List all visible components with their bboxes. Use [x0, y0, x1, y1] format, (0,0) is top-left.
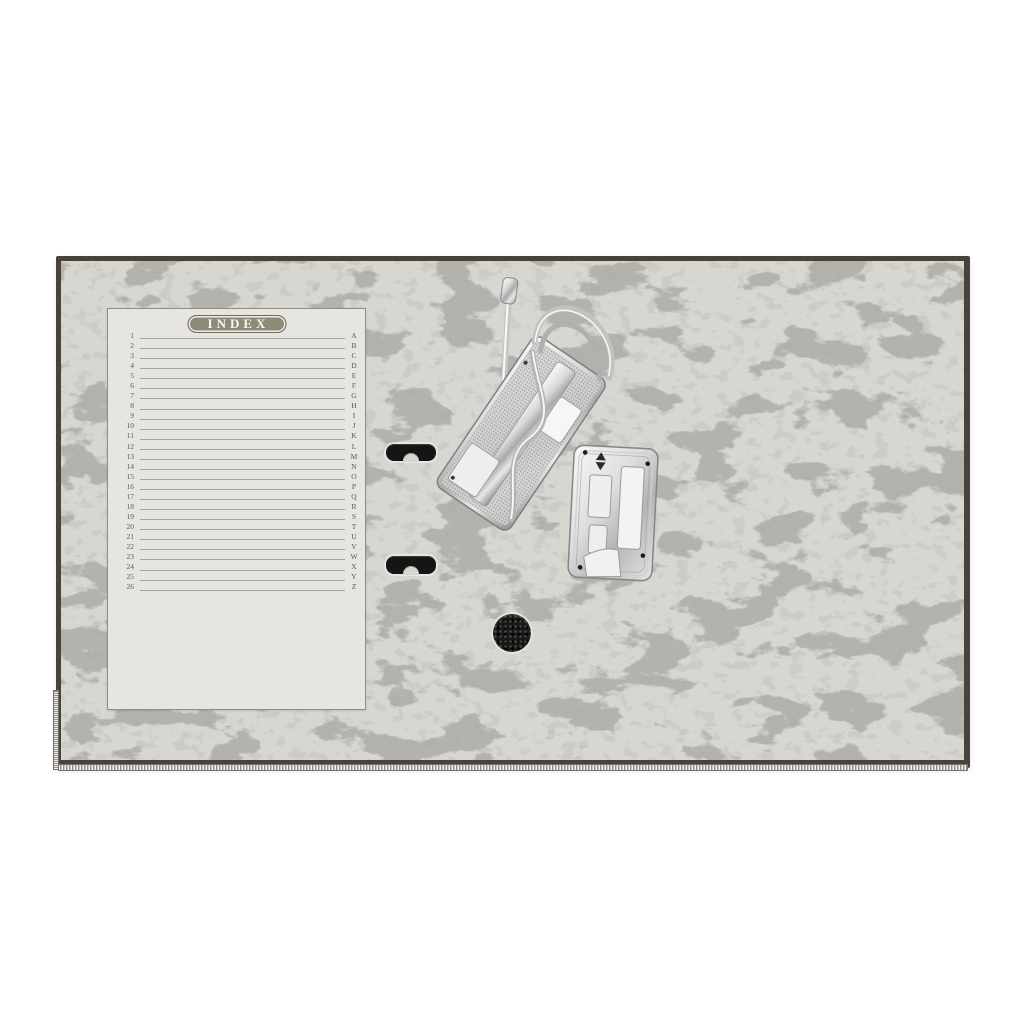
index-row-number: 19 — [116, 513, 139, 521]
index-row-line — [140, 489, 345, 490]
index-row-letter: J — [347, 422, 360, 430]
index-row-line — [140, 429, 345, 430]
index-row: 2B — [116, 340, 360, 350]
index-row-number: 2 — [116, 342, 139, 350]
index-row: 10J — [116, 421, 360, 431]
index-row-number: 26 — [116, 583, 139, 591]
index-row-line — [140, 559, 345, 560]
index-row-line — [140, 509, 345, 510]
lever-arch-file-inner-cover: INDEX 1A2B3C4D5E6F7G8H9I10J11K12L13M14N1… — [56, 256, 970, 768]
index-row-letter: S — [347, 513, 360, 521]
index-row-letter: P — [347, 483, 360, 491]
index-row-number: 24 — [116, 563, 139, 571]
index-row-number: 18 — [116, 503, 139, 511]
index-row: 12L — [116, 441, 360, 451]
index-row-line — [140, 590, 345, 591]
index-row: 21U — [116, 531, 360, 541]
index-row: 25Y — [116, 572, 360, 582]
index-row-number: 21 — [116, 533, 139, 541]
index-row-number: 8 — [116, 402, 139, 410]
grip-hole — [493, 614, 531, 652]
index-row-line — [140, 388, 345, 389]
index-row-letter: H — [347, 402, 360, 410]
index-row-line — [140, 570, 345, 571]
index-row-line — [140, 459, 345, 460]
index-row: 7G — [116, 390, 360, 400]
index-row: 1A — [116, 330, 360, 340]
index-row-letter: B — [347, 342, 360, 350]
index-row-number: 12 — [116, 443, 139, 451]
index-row: 22V — [116, 541, 360, 551]
index-row-number: 9 — [116, 412, 139, 420]
index-row-letter: X — [347, 563, 360, 571]
index-rows: 1A2B3C4D5E6F7G8H9I10J11K12L13M14N15O16P1… — [116, 330, 360, 592]
index-row-number: 5 — [116, 372, 139, 380]
metal-edge-strip-bottom — [58, 764, 968, 771]
index-row-number: 6 — [116, 382, 139, 390]
index-row-letter: M — [347, 453, 360, 461]
index-row-line — [140, 358, 345, 359]
index-row-letter: E — [347, 372, 360, 380]
index-row-letter: T — [347, 523, 360, 531]
index-row-letter: Y — [347, 573, 360, 581]
index-row: 15O — [116, 471, 360, 481]
index-row: 8H — [116, 400, 360, 410]
index-row: 5E — [116, 370, 360, 380]
index-row: 24X — [116, 561, 360, 571]
index-row-letter: U — [347, 533, 360, 541]
product-photo: INDEX 1A2B3C4D5E6F7G8H9I10J11K12L13M14N1… — [0, 0, 1024, 1024]
index-row-letter: O — [347, 473, 360, 481]
index-row-line — [140, 419, 345, 420]
index-row-letter: C — [347, 352, 360, 360]
index-row: 17Q — [116, 491, 360, 501]
index-row-letter: G — [347, 392, 360, 400]
index-row-number: 1 — [116, 332, 139, 340]
index-row-line — [140, 368, 345, 369]
index-card: INDEX 1A2B3C4D5E6F7G8H9I10J11K12L13M14N1… — [107, 308, 366, 710]
index-row-letter: I — [347, 412, 360, 420]
index-row-number: 3 — [116, 352, 139, 360]
index-row-letter: W — [347, 553, 360, 561]
index-row-letter: N — [347, 463, 360, 471]
index-row: 6F — [116, 380, 360, 390]
index-row-letter: Z — [347, 583, 360, 591]
index-row-letter: R — [347, 503, 360, 511]
index-row-line — [140, 449, 345, 450]
index-row-number: 15 — [116, 473, 139, 481]
index-row: 14N — [116, 461, 360, 471]
index-row-line — [140, 439, 345, 440]
index-row: 18R — [116, 501, 360, 511]
index-row-number: 14 — [116, 463, 139, 471]
index-row-letter: D — [347, 362, 360, 370]
index-row-line — [140, 580, 345, 581]
index-row-line — [140, 519, 345, 520]
index-row-line — [140, 529, 345, 530]
index-row-letter: V — [347, 543, 360, 551]
index-row: 23W — [116, 551, 360, 561]
index-row-number: 4 — [116, 362, 139, 370]
index-row-number: 7 — [116, 392, 139, 400]
index-row-number: 17 — [116, 493, 139, 501]
index-row: 19S — [116, 511, 360, 521]
index-row-line — [140, 338, 345, 339]
index-row: 9I — [116, 411, 360, 421]
index-row-line — [140, 378, 345, 379]
index-row-line — [140, 348, 345, 349]
index-row-number: 11 — [116, 432, 139, 440]
index-row-number: 10 — [116, 422, 139, 430]
index-row-number: 16 — [116, 483, 139, 491]
index-row: 11K — [116, 431, 360, 441]
compressor-plate — [566, 442, 666, 592]
index-row-number: 20 — [116, 523, 139, 531]
index-row: 13M — [116, 451, 360, 461]
index-row: 4D — [116, 360, 360, 370]
index-row-line — [140, 398, 345, 399]
index-row: 26Z — [116, 582, 360, 592]
index-row-line — [140, 469, 345, 470]
index-row-line — [140, 539, 345, 540]
index-row-number: 25 — [116, 573, 139, 581]
index-row-number: 23 — [116, 553, 139, 561]
index-row: 3C — [116, 350, 360, 360]
index-row-letter: K — [347, 432, 360, 440]
index-row: 20T — [116, 521, 360, 531]
index-row-number: 13 — [116, 453, 139, 461]
index-row-number: 22 — [116, 543, 139, 551]
metal-edge-strip-left — [53, 690, 59, 770]
index-row-letter: A — [347, 332, 360, 340]
index-row-line — [140, 549, 345, 550]
index-row: 16P — [116, 481, 360, 491]
index-row-line — [140, 499, 345, 500]
index-row-letter: L — [347, 443, 360, 451]
index-row-line — [140, 479, 345, 480]
index-row-letter: Q — [347, 493, 360, 501]
index-row-line — [140, 409, 345, 410]
index-row-letter: F — [347, 382, 360, 390]
